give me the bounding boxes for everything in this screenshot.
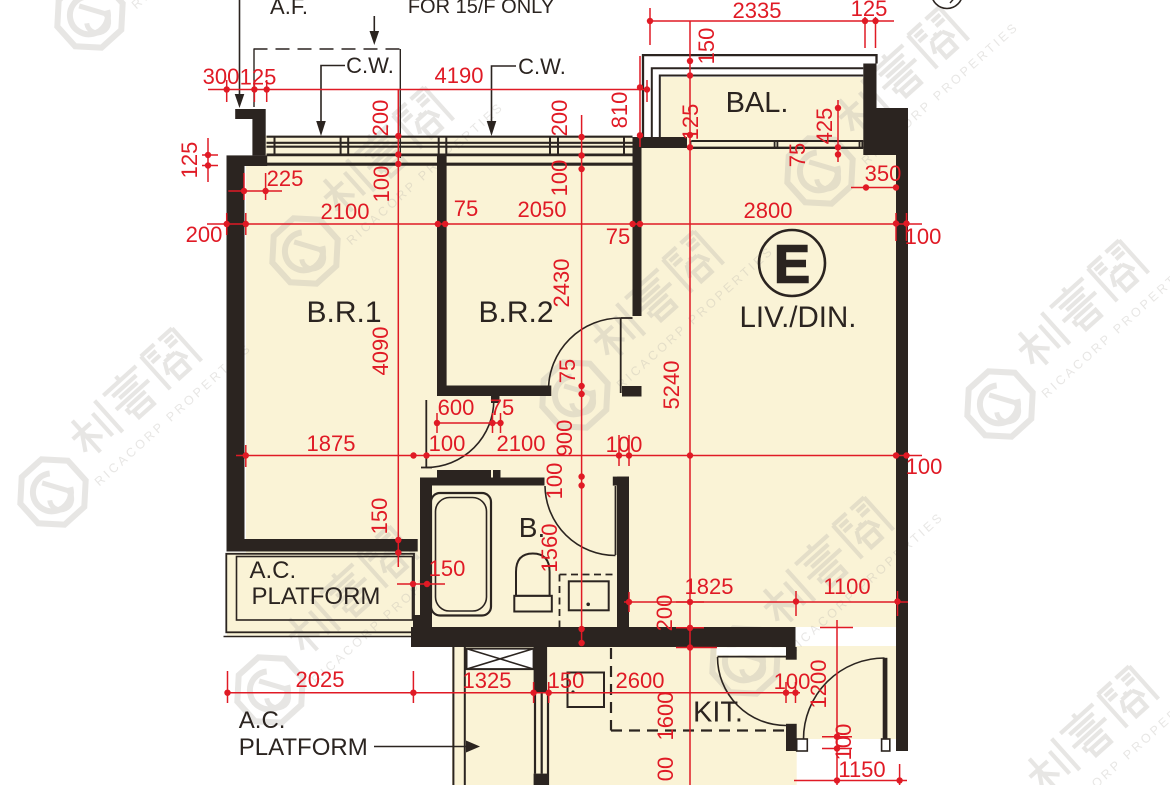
svg-text:425: 425 bbox=[812, 108, 837, 145]
svg-text:810: 810 bbox=[607, 92, 632, 129]
svg-text:100: 100 bbox=[831, 724, 856, 761]
svg-text:125: 125 bbox=[678, 104, 703, 141]
svg-text:200: 200 bbox=[186, 222, 223, 247]
svg-text:600: 600 bbox=[438, 395, 475, 420]
svg-text:1325: 1325 bbox=[463, 668, 512, 693]
svg-text:75: 75 bbox=[490, 395, 514, 420]
svg-text:125: 125 bbox=[240, 65, 277, 90]
svg-text:C.W.: C.W. bbox=[518, 54, 566, 79]
svg-text:100: 100 bbox=[606, 432, 643, 457]
svg-text:1200: 1200 bbox=[806, 660, 831, 709]
svg-text:FOR 15/F ONLY: FOR 15/F ONLY bbox=[408, 0, 554, 18]
svg-text:150: 150 bbox=[429, 556, 466, 581]
svg-text:75: 75 bbox=[454, 196, 478, 221]
svg-text:A.C.: A.C. bbox=[239, 707, 286, 734]
svg-text:PLATFORM: PLATFORM bbox=[252, 583, 381, 610]
svg-text:B.: B. bbox=[519, 512, 545, 543]
svg-text:100: 100 bbox=[542, 463, 567, 500]
svg-text:150: 150 bbox=[694, 28, 719, 65]
svg-text:150: 150 bbox=[367, 498, 392, 535]
svg-text:2335: 2335 bbox=[733, 0, 782, 23]
svg-text:200: 200 bbox=[547, 100, 572, 137]
svg-text:75: 75 bbox=[785, 143, 810, 167]
svg-text:100: 100 bbox=[774, 669, 811, 694]
svg-text:75: 75 bbox=[606, 224, 630, 249]
svg-text:B.R.1: B.R.1 bbox=[306, 296, 381, 329]
svg-text:5240: 5240 bbox=[659, 361, 684, 410]
svg-text:4090: 4090 bbox=[368, 327, 393, 376]
svg-text:2600: 2600 bbox=[616, 668, 665, 693]
svg-text:1825: 1825 bbox=[685, 574, 734, 599]
svg-text:100: 100 bbox=[369, 166, 394, 203]
svg-text:A.F.: A.F. bbox=[270, 0, 308, 19]
svg-text:350: 350 bbox=[865, 161, 902, 186]
svg-text:225: 225 bbox=[267, 166, 304, 191]
svg-text:100: 100 bbox=[906, 454, 943, 479]
svg-text:100: 100 bbox=[547, 160, 572, 197]
svg-text:1875: 1875 bbox=[307, 431, 356, 456]
svg-text:2100: 2100 bbox=[321, 199, 370, 224]
svg-text:1100: 1100 bbox=[823, 574, 870, 599]
svg-text:200: 200 bbox=[652, 595, 677, 632]
svg-text:150: 150 bbox=[548, 668, 585, 693]
svg-text:2050: 2050 bbox=[518, 197, 567, 222]
svg-text:B.R.2: B.R.2 bbox=[478, 296, 553, 329]
svg-text:2800: 2800 bbox=[744, 198, 793, 223]
svg-text:KIT.: KIT. bbox=[693, 697, 743, 729]
svg-text:125: 125 bbox=[851, 0, 888, 21]
svg-text:200: 200 bbox=[368, 100, 393, 137]
svg-text:C.W.: C.W. bbox=[346, 53, 394, 78]
svg-text:A.C.: A.C. bbox=[250, 557, 297, 584]
svg-text:125: 125 bbox=[177, 142, 202, 179]
svg-text:75: 75 bbox=[555, 359, 580, 383]
svg-text:900: 900 bbox=[552, 420, 577, 457]
svg-text:4190: 4190 bbox=[435, 63, 484, 88]
svg-text:LIV./DIN.: LIV./DIN. bbox=[740, 301, 857, 334]
svg-text:00: 00 bbox=[653, 757, 678, 781]
svg-text:BAL.: BAL. bbox=[726, 87, 789, 119]
svg-text:2025: 2025 bbox=[296, 667, 345, 692]
svg-text:2100: 2100 bbox=[497, 431, 546, 456]
svg-text:300: 300 bbox=[203, 64, 240, 89]
svg-text:E: E bbox=[774, 235, 810, 295]
svg-text:100: 100 bbox=[905, 224, 942, 249]
svg-text:100: 100 bbox=[429, 431, 466, 456]
svg-text:1600: 1600 bbox=[653, 692, 678, 741]
svg-text:PLATFORM: PLATFORM bbox=[239, 734, 368, 761]
